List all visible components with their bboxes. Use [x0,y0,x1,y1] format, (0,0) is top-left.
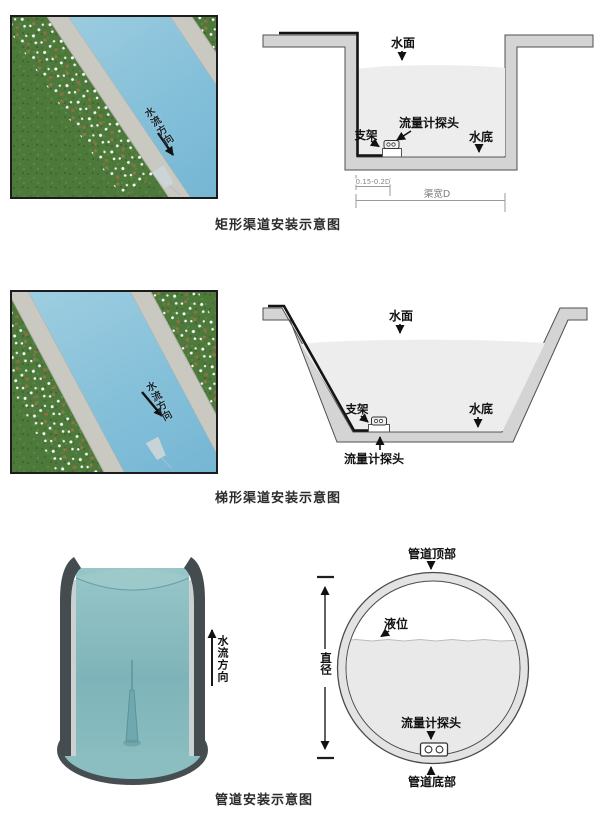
liquid-fill [340,640,526,761]
pipe-flow-direction-label: 水流方向 [214,635,230,683]
flowmeter-probe [384,141,399,149]
trap-caption: 梯形渠道安装示意图 [215,487,341,506]
rect-channel-photo: 水流方向 [10,15,218,199]
bracket-label: 支架 [345,402,369,416]
probe-label: 流量计探头 [401,715,461,730]
bracket-label: 支架 [354,128,378,142]
rect-caption: 矩形渠道安装示意图 [215,214,341,233]
probe-bracket [383,149,402,158]
pipe-inner-lining-right [189,580,194,756]
probe-label: 流量计探头 [399,115,459,130]
channel-band [12,292,216,472]
manual-page: 水流方向 水面 流量计探头 支架 水底 0.15-0.2D [0,0,600,819]
channel-bottom-label: 水底 [469,401,493,416]
trap-channel-photo: 水流方向 [10,290,218,474]
pipe-caption: 管道安装示意图 [215,789,313,808]
width-dimension-text: 渠宽D [424,188,450,200]
trap-channel-diagram: 水面 支架 水底 流量计探头 [253,288,600,480]
rect-channel-diagram: 水面 流量计探头 支架 水底 0.15-0.2D 渠宽D [253,12,600,218]
trap-channel-photo-render [12,292,216,472]
pipe-top-label: 管道顶部 [408,546,456,561]
channel-bottom-label: 水底 [469,129,493,144]
pipe-3d-render [40,540,275,800]
liquid-level-label: 液位 [384,616,408,631]
pipe-cross-section-diagram: 管道顶部 液位 流量计探头 管道底部 [302,542,600,804]
flowmeter-probe [372,417,387,425]
water-surface-label: 水面 [391,35,415,50]
probe-label: 流量计探头 [344,451,404,466]
pipe-bottom-label: 管道底部 [408,774,456,789]
probe-bracket [369,425,390,433]
offset-dimension-text: 0.15-0.2D [356,178,391,186]
rect-channel-photo-render [12,17,216,197]
diameter-label: 直径 [318,652,334,675]
pipe-inner-lining-left [71,580,76,756]
flowmeter-probe [421,743,448,756]
water-surface-label: 水面 [389,308,413,323]
